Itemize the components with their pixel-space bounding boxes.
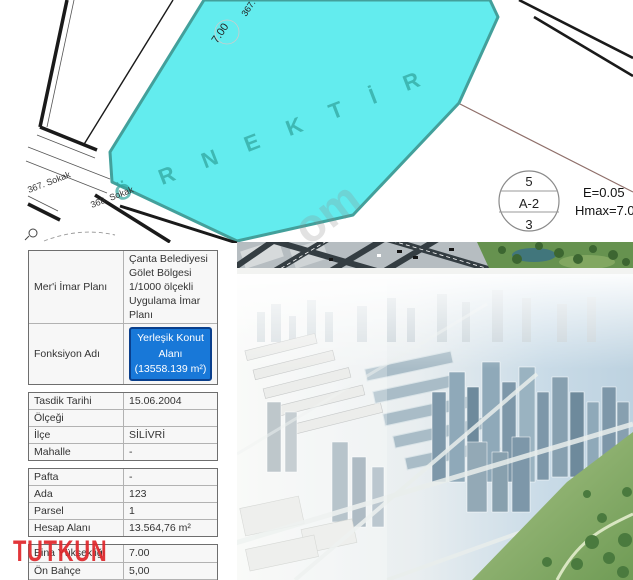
- row-label: Mer'i İmar Planı: [29, 251, 124, 323]
- table-row: Pafta-: [29, 469, 217, 486]
- legend-ada-kat: 5: [525, 174, 532, 189]
- row-label: Tasdik Tarihi: [29, 393, 124, 409]
- table-row: Fonksiyon AdıYerleşik Konut Alanı(13558.…: [29, 324, 217, 384]
- table-row: Ada123: [29, 486, 217, 503]
- info-tables: Mer'i İmar PlanıÇanta Belediyesi Gölet B…: [28, 250, 218, 580]
- row-value: 13.564,76 m²: [124, 520, 217, 536]
- aerial-render-photo: [237, 242, 633, 580]
- table-row: İlçeSİLİVRİ: [29, 427, 217, 444]
- function-area-button[interactable]: Yerleşik Konut Alanı(13558.139 m²): [129, 327, 212, 381]
- row-value: Çanta Belediyesi Gölet Bölgesi 1/1000 öl…: [124, 251, 217, 323]
- road-line: [40, 127, 97, 150]
- function-area-size: (13558.139 m²): [134, 362, 207, 377]
- row-value: 5,00: [124, 563, 217, 579]
- parcel-legend-circle: 5 A-2 3: [499, 171, 559, 232]
- road-line: [534, 17, 633, 76]
- row-label: İlçe: [29, 427, 124, 443]
- info-table-2: Tasdik Tarihi15.06.2004ÖlçeğiİlçeSİLİVRİ…: [28, 392, 218, 461]
- row-value: 7.00: [124, 545, 217, 561]
- turning-circle-icon-tail: [25, 236, 29, 240]
- row-value: 15.06.2004: [124, 393, 217, 409]
- row-value: 123: [124, 486, 217, 502]
- road-line-thin: [47, 0, 74, 127]
- row-label: Pafta: [29, 469, 124, 485]
- legend-parsel-no: 3: [525, 217, 532, 232]
- road-line: [519, 0, 633, 58]
- listing-image: ÖRNEKTİR 7: [0, 0, 633, 580]
- legend-zone-code: A-2: [519, 196, 539, 211]
- road-line-thin: [28, 196, 58, 211]
- zoning-map-drawing: ÖRNEKTİR 7: [0, 0, 633, 243]
- info-table-3: Pafta-Ada123Parsel1Hesap Alanı13.564,76 …: [28, 468, 218, 537]
- table-row: Parsel1: [29, 503, 217, 520]
- road-line: [40, 0, 67, 127]
- strip-gap: [237, 268, 633, 274]
- hmax-note: Hmax=7.0: [575, 203, 633, 218]
- row-label: Ada: [29, 486, 124, 502]
- road-line: [28, 204, 60, 220]
- table-row: Mer'i İmar PlanıÇanta Belediyesi Gölet B…: [29, 251, 217, 324]
- function-area-name: Yerleşik Konut Alanı: [134, 331, 207, 361]
- turning-circle-icon: [29, 229, 37, 237]
- row-label: Ölçeği: [29, 410, 124, 426]
- city-scene: [237, 274, 633, 580]
- row-label: Fonksiyon Adı: [29, 324, 124, 384]
- row-label: Mahalle: [29, 444, 124, 460]
- emsal-note: E=0.05: [583, 185, 625, 200]
- brand-logo: TUTKUN: [13, 535, 107, 569]
- zoning-map: ÖRNEKTİR 7: [0, 0, 633, 243]
- row-value: [124, 410, 217, 426]
- aerial-render-illustration: [237, 242, 633, 580]
- table-row: Mahalle-: [29, 444, 217, 460]
- row-label: Parsel: [29, 503, 124, 519]
- row-value: Yerleşik Konut Alanı(13558.139 m²): [124, 324, 217, 384]
- row-value: -: [124, 469, 217, 485]
- row-value: 1: [124, 503, 217, 519]
- street-label-367: 367. Sokak: [26, 169, 72, 195]
- table-row: Tasdik Tarihi15.06.2004: [29, 393, 217, 410]
- dashed-arc: [44, 232, 115, 241]
- table-row: Ölçeği: [29, 410, 217, 427]
- info-table-1: Mer'i İmar PlanıÇanta Belediyesi Gölet B…: [28, 250, 218, 385]
- row-value: -: [124, 444, 217, 460]
- row-value: SİLİVRİ: [124, 427, 217, 443]
